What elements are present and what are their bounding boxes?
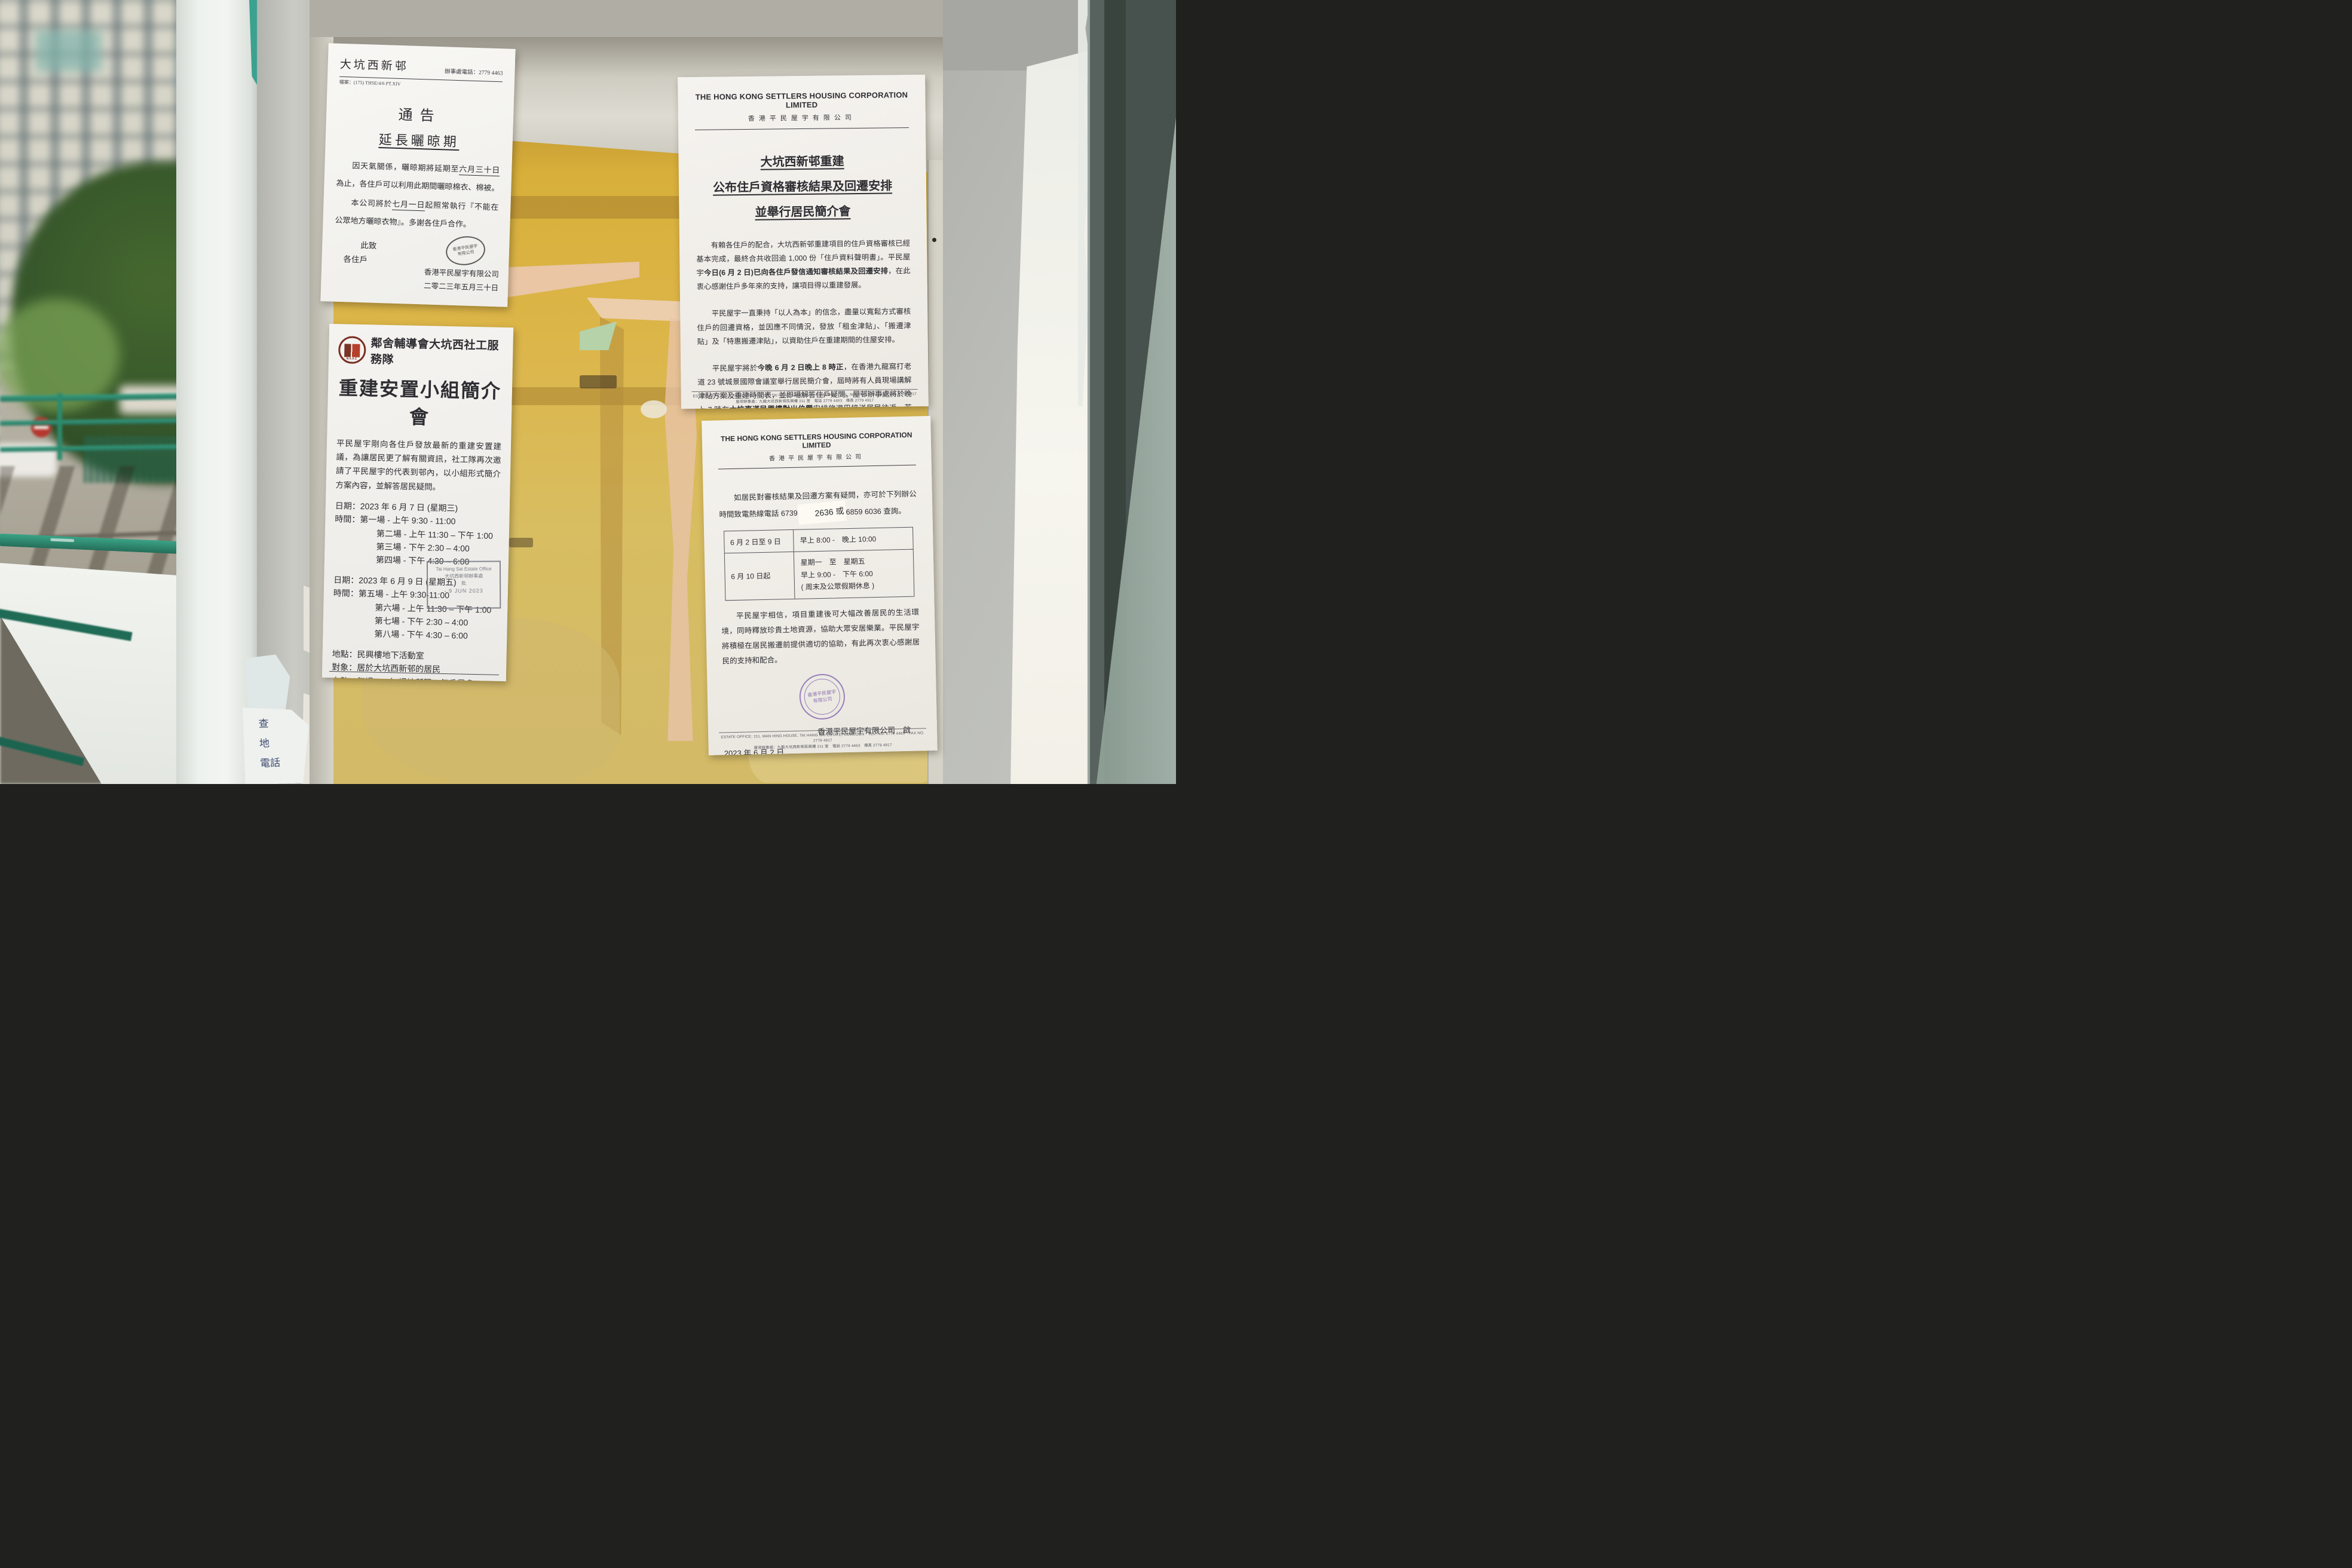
header-rule — [718, 465, 916, 470]
p1-pre: 因天氣關係，曬晾期將延期至 — [352, 161, 459, 174]
door-frame-sunlit-part — [1088, 0, 1176, 784]
signature-block: 香港平民屋宇有限公司 二零二三年五月三十日 — [424, 265, 499, 296]
title-line-3: 並舉行居民簡介會 — [755, 205, 850, 219]
notice-title: 通告 — [338, 101, 502, 127]
hours-value: 星期一 至 星期五 早上 9:00 - 下午 6:00 ( 周末及公眾假期休息 … — [794, 550, 914, 598]
signature-date: 二零二三年五月三十日 — [424, 280, 499, 296]
p3-bold-datetime: 今晚 6 月 2 日晚上 8 時正 — [758, 363, 844, 372]
building-teal-windows — [36, 30, 102, 72]
stamp-text: 批 — [428, 580, 500, 587]
logo-caption: NAAC — [347, 357, 358, 360]
organization-name: 鄰舍輔導會大坑西社工服務隊 — [370, 334, 504, 369]
torn-paper-residue — [641, 400, 667, 418]
notice-subtitle: 延長曬晾期 — [337, 128, 501, 152]
company-stamp-icon: 香港平民屋宇 有限公司 — [797, 671, 847, 722]
naac-logo-icon: NAAC — [338, 336, 366, 364]
notice-vetting-results: THE HONG KONG SETTLERS HOUSING CORPORATI… — [678, 75, 929, 409]
hours-closed-note: ( 周末及公眾假期休息 ) — [801, 579, 908, 593]
paragraph-1: 有賴各住戶的配合，大坑西新邨重建項目的住戶資格審核已經基本完成，最終合共收回逾 … — [696, 237, 911, 294]
scrap-text: 地 — [259, 732, 310, 754]
notice-title-block: 大坑西新邨重建 公布住戶資格審核結果及回遷安排 並舉行居民簡介會 — [695, 148, 909, 226]
intro-paragraph: 平民屋宇剛向各住戶發放最新的重建安置建議，為讓居民更了解有關資訊，社工隊再次邀請… — [335, 436, 501, 495]
p1-bold: 今日(6 月 2 日)已向各住戶發信通知審核結果及回遷安排 — [704, 267, 888, 277]
p1-post: 為止，各住戶可以利用此期間曬晾棉衣、棉被。 — [336, 179, 499, 193]
notice-hotline-hours: THE HONG KONG SETTLERS HOUSING CORPORATI… — [702, 416, 938, 755]
stamp-text-zh: 大坑西新邨辦事處 — [428, 572, 500, 580]
scrap-text: 電話 — [259, 752, 310, 773]
stamp-date: - 9 JUN 2023 — [428, 587, 500, 595]
stain-mark — [509, 538, 533, 547]
dark-door-frame — [1088, 0, 1176, 784]
notice-header: 大坑西新邨 辦事處電話：2779 4463 — [339, 56, 503, 77]
hours-period: 6 月 10 日起 — [724, 552, 795, 600]
paragraph-2: 平民屋宇一直秉持「以人為本」的信念，盡量以寬鬆方式審核住戶的回遷資格，並因應不同… — [697, 305, 911, 349]
notice-header: NAAC 鄰舍輔導會大坑西社工服務隊 — [338, 333, 504, 369]
subtitle-text: 延長曬晾期 — [378, 132, 460, 149]
stamp-inner-ring: 香港平民屋宇 有限公司 — [802, 676, 842, 716]
photo-noticeboard-scene: 大坑西新邨 辦事處電話：2779 4463 檔案：(175) THSE/4/6 … — [0, 0, 1176, 784]
company-name-en: THE HONG KONG SETTLERS HOUSING CORPORATI… — [694, 90, 908, 111]
stain-mark — [580, 375, 617, 388]
estate-name: 大坑西新邨 — [339, 56, 409, 74]
notice-title: 重建安置小組簡介會 — [337, 373, 503, 431]
corrected-number-sticker: 2636 或 — [799, 503, 844, 523]
hours-value: 早上 8:00 - 晚上 10:00 — [794, 528, 913, 552]
paragraph-2: 本公司將於七月一日起照常執行『不能在公眾地方曬晾衣物』。多謝各住戶合作。 — [335, 193, 499, 234]
screw — [932, 238, 936, 242]
table-row: 6 月 2 日至 9 日 早上 8:00 - 晚上 10:00 — [724, 528, 913, 553]
logo-buildings-glyph — [344, 344, 360, 357]
closing-paragraph: 平民屋宇相信，項目重建後可大幅改善居民的生活環境，同時釋放珍貴土地資源，協助大眾… — [721, 605, 920, 669]
hotline-paragraph: 如居民對審核結果及回遷方案有疑問，亦可於下列辦公時間致電熱線電話 6739 26… — [719, 487, 917, 523]
header-rule — [695, 127, 909, 130]
p1-date-underlined: 六月三十日 — [459, 164, 500, 174]
stamp-text-en: Tai Hang Sai Estate Office — [428, 565, 500, 573]
company-name-en: THE HONG KONG SETTLERS HOUSING CORPORATI… — [718, 431, 916, 452]
office-hours-table: 6 月 2 日至 9 日 早上 8:00 - 晚上 10:00 6 月 10 日… — [724, 527, 915, 601]
railing-post — [57, 393, 62, 460]
schedule-day1: 日期：2023 年 6 月 7 日 (星期三) 時間：第一場 - 上午 9:30… — [334, 499, 500, 569]
notice-drying-extension: 大坑西新邨 辦事處電話：2779 4463 檔案：(175) THSE/4/6 … — [320, 43, 515, 307]
hours-period: 6 月 2 日至 9 日 — [724, 530, 795, 553]
title-line-2: 公布住戶資格審核結果及回遷安排 — [713, 179, 892, 194]
p2-pre: 本公司將於 — [351, 198, 392, 208]
table-row: 6 月 10 日起 星期一 至 星期五 早上 9:00 - 下午 6:00 ( … — [724, 549, 914, 600]
session-line: 第八場 - 下午 4:30 – 6:00 — [332, 626, 497, 643]
letterhead-footer: ESTATE OFFICE: 211, MAN HING HOUSE, TAI … — [692, 389, 918, 405]
white-pillar — [176, 0, 257, 784]
company-name-zh: 香港平民屋宇有限公司 — [695, 112, 909, 124]
event-info: 地點：民興樓地下活動室 對象：居於大坑西新邨的居民 人數：每場 35 人(場地所… — [330, 647, 497, 681]
hotline-post: 6859 6036 查詢。 — [844, 507, 906, 516]
notice-briefing-sessions: NAAC 鄰舍輔導會大坑西社工服務隊 重建安置小組簡介會 平民屋宇剛向各住戶發放… — [322, 324, 513, 681]
paragraph-1: 因天氣關係，曬晾期將延期至六月三十日為止，各住戶可以利用此期間曬晾棉衣、棉被。 — [336, 157, 500, 197]
p3-pre: 平民屋宇將於 — [712, 364, 758, 373]
office-phone: 辦事處電話：2779 4463 — [445, 66, 503, 76]
p2-date-underlined: 七月一日 — [392, 199, 425, 209]
title-line-1: 大坑西新邨重建 — [760, 155, 844, 169]
estate-office-stamp: Tai Hang Sai Estate Office 大坑西新邨辦事處 批 - … — [427, 561, 501, 609]
company-name-zh: 香港平民屋宇有限公司 — [718, 451, 915, 464]
